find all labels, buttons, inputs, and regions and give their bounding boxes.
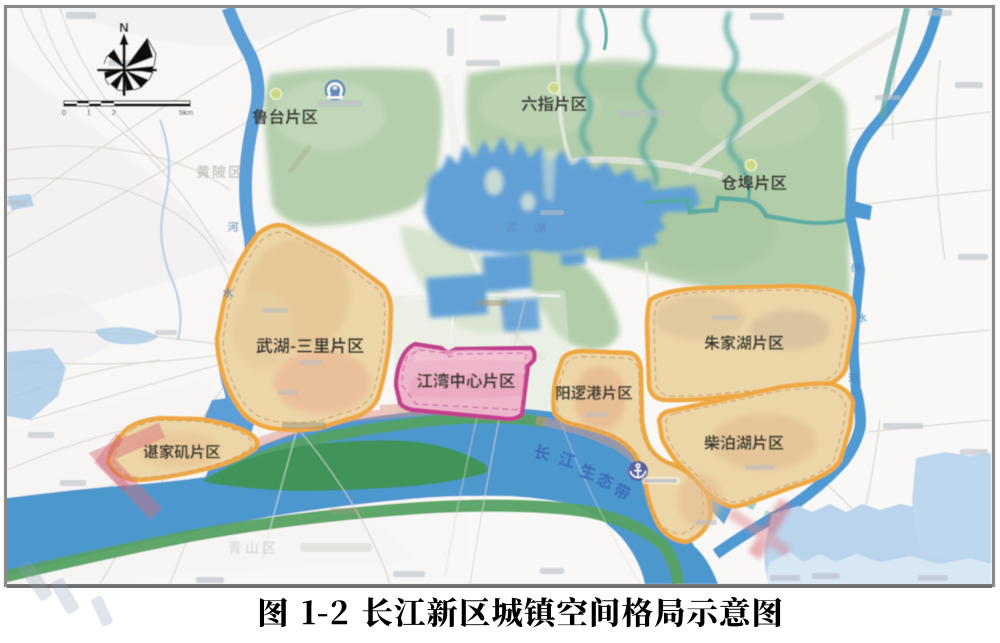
svg-text:5km: 5km bbox=[179, 108, 193, 117]
svg-text:N: N bbox=[119, 20, 128, 35]
svg-text:2: 2 bbox=[112, 108, 116, 117]
svg-text:0: 0 bbox=[62, 108, 66, 117]
svg-text:1: 1 bbox=[87, 108, 91, 117]
